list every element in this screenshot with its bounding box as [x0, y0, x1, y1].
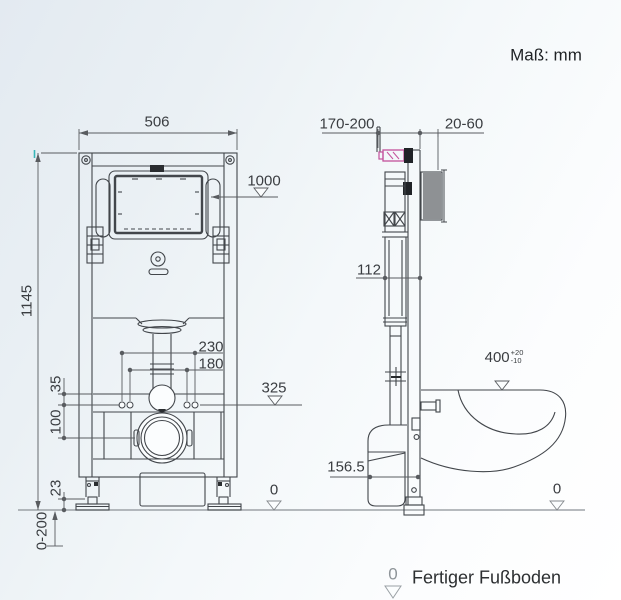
flush-valve-emblem: [149, 252, 168, 275]
frame-legs-feet: [76, 477, 241, 510]
flush-bend: [149, 385, 175, 414]
bowl-height-value: 400: [485, 350, 510, 365]
actuator-duct: [421, 170, 447, 222]
dim-rail-offset: 35: [49, 376, 64, 393]
technical-drawing-canvas: Maß: mm 506 1145 1000 230 180 35 100 325…: [0, 0, 621, 600]
level-marker-icon: [268, 396, 282, 405]
dim-cistern-depth: 112: [357, 263, 381, 278]
dim-front-width: 506: [144, 115, 169, 130]
cistern-side: [382, 172, 408, 340]
dim-bowl-height: 400 +20 -10: [485, 349, 524, 366]
dim-panel-height: 1000: [247, 174, 280, 189]
inspection-window: [109, 165, 208, 239]
flush-pipe-front: [150, 334, 174, 390]
units-label: Maß: mm: [510, 47, 582, 64]
dim-fixing-inner: 180: [198, 357, 223, 372]
window-clip: [150, 165, 164, 172]
level-marker-icon: [267, 501, 281, 510]
dim-fixing-outer: 230: [198, 340, 223, 355]
level-marker-icon: [495, 381, 509, 390]
level-marker-icon: [385, 586, 401, 598]
wc-bowl: [412, 390, 566, 472]
drawing-linework: [0, 0, 621, 600]
dim-supply-height: 325: [261, 381, 286, 396]
front-dimension-lines: [35, 129, 303, 546]
drain-elbow: [368, 425, 407, 506]
dim-foot-height: 23: [49, 480, 64, 497]
drain-assembly: [93, 412, 224, 463]
frame-clamp: [403, 182, 412, 195]
water-supply: [377, 127, 413, 195]
outlet-box: [140, 473, 205, 506]
dim-adjust-range: 0-200: [35, 512, 50, 550]
dim-wall-thickness: 20-60: [445, 117, 483, 132]
level-marker-icon: [550, 501, 564, 510]
legend-label: Fertiger Fußboden: [412, 568, 561, 589]
bowl-height-tolerance: +20 -10: [511, 349, 524, 366]
dim-outlet-height: 156.5: [327, 460, 365, 475]
supply-valve: [383, 150, 404, 161]
dim-front-height: 1145: [20, 285, 35, 317]
legend-zero-symbol: 0: [388, 566, 397, 583]
side-dimension-lines: [322, 129, 564, 510]
dim-front-floor-zero: 0: [270, 483, 278, 498]
dim-frame-depth: 170-200: [319, 117, 374, 132]
dim-side-floor-zero: 0: [553, 482, 561, 497]
flush-pipe-side: [385, 340, 406, 425]
cistern-bottom: [93, 318, 224, 333]
dim-drain-offset: 100: [49, 409, 64, 434]
frame-clamp: [404, 148, 413, 163]
